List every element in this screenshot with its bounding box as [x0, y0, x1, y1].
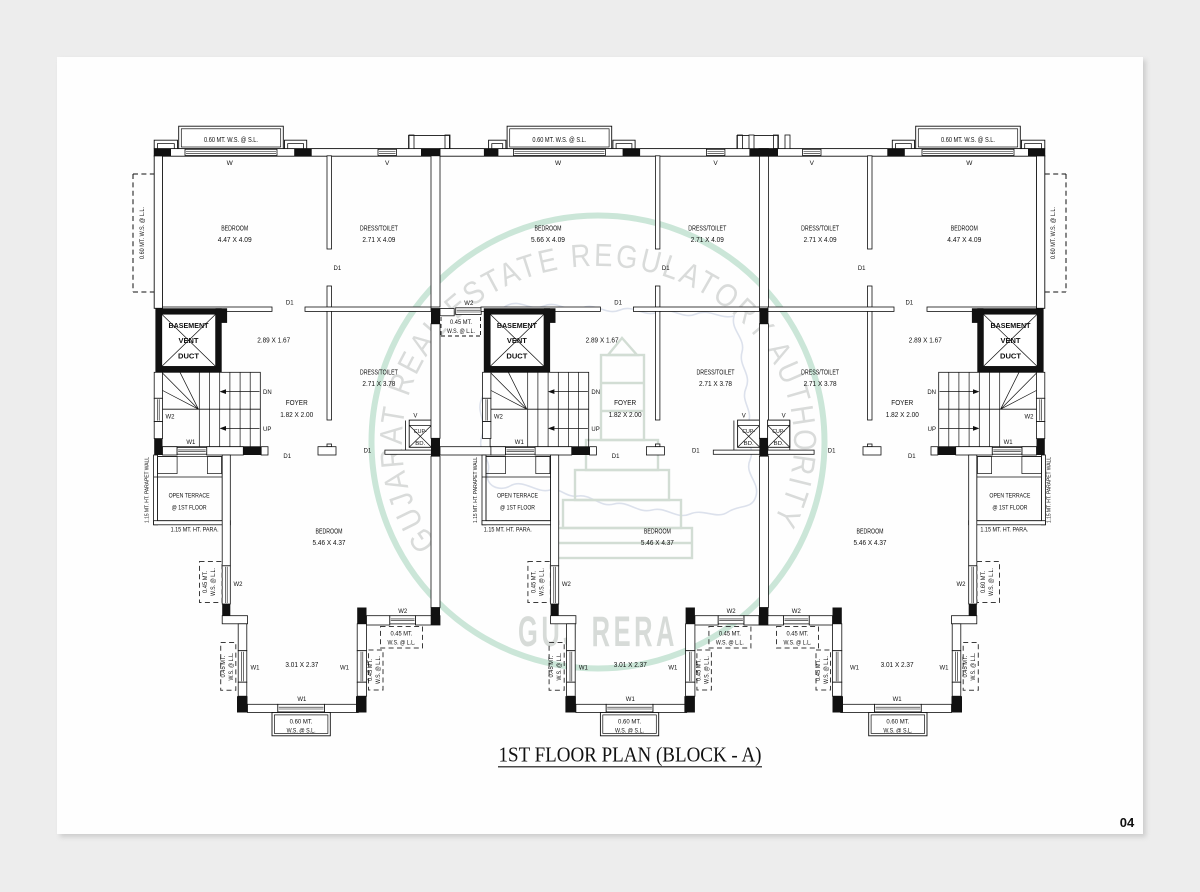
- svg-text:5.66 X 4.09: 5.66 X 4.09: [531, 237, 565, 244]
- svg-text:1.82 X 2.00: 1.82 X 2.00: [609, 412, 642, 419]
- svg-text:W.S. @ L.L.: W.S. @ L.L.: [557, 652, 563, 680]
- svg-text:OPEN TERRACE: OPEN TERRACE: [989, 493, 1031, 500]
- svg-text:W.S. @ L.L.: W.S. @ L.L.: [989, 568, 995, 596]
- svg-text:W.S. @ L.L.: W.S. @ L.L.: [705, 656, 711, 684]
- svg-text:DRESS/TOILET: DRESS/TOILET: [801, 226, 840, 233]
- svg-text:1.15 MT. HT. PARA.: 1.15 MT. HT. PARA.: [484, 527, 532, 534]
- svg-text:CUP-: CUP-: [742, 429, 755, 435]
- svg-text:1.15 MT. HT. PARAPET WALL: 1.15 MT. HT. PARAPET WALL: [145, 457, 151, 523]
- svg-text:D1: D1: [662, 266, 670, 272]
- svg-text:DRESS/TOILET: DRESS/TOILET: [360, 370, 399, 377]
- svg-text:FOYER: FOYER: [286, 400, 308, 407]
- svg-text:1.82 X 2.00: 1.82 X 2.00: [886, 412, 919, 419]
- svg-text:0.45 MT.: 0.45 MT.: [391, 632, 413, 638]
- svg-text:D1: D1: [614, 301, 622, 307]
- svg-text:W2: W2: [727, 609, 737, 615]
- svg-text:W1: W1: [1004, 440, 1014, 446]
- svg-text:D1: D1: [828, 449, 836, 455]
- svg-text:W.S. @ S.L.: W.S. @ S.L.: [287, 727, 316, 734]
- svg-text:BEDROOM: BEDROOM: [535, 226, 562, 233]
- svg-text:BEDROOM: BEDROOM: [644, 529, 671, 536]
- svg-text:FOYER: FOYER: [891, 400, 913, 407]
- svg-text:W.S. @ L.L.: W.S. @ L.L.: [540, 568, 546, 596]
- svg-text:W2: W2: [792, 609, 802, 615]
- svg-text:OPEN TERRACE: OPEN TERRACE: [497, 493, 539, 500]
- svg-text:DRESS/TOILET: DRESS/TOILET: [801, 370, 840, 377]
- svg-text:CUP-: CUP-: [414, 429, 427, 435]
- svg-text:D1: D1: [905, 301, 913, 307]
- svg-text:W1: W1: [297, 697, 307, 703]
- svg-text:W.S. @ L.L.: W.S. @ L.L.: [824, 656, 830, 684]
- svg-text:BEDROOM: BEDROOM: [951, 226, 978, 233]
- svg-text:V: V: [413, 414, 417, 420]
- svg-text:V: V: [742, 414, 746, 420]
- svg-text:1.82 X 2.00: 1.82 X 2.00: [280, 412, 313, 419]
- svg-text:D1: D1: [364, 449, 372, 455]
- svg-text:1.15 MT. HT. PARAPET WALL: 1.15 MT. HT. PARAPET WALL: [473, 457, 479, 523]
- svg-text:DN: DN: [927, 390, 936, 396]
- svg-text:0.45 MT.: 0.45 MT.: [963, 655, 969, 677]
- svg-text:0.60 MT.: 0.60 MT.: [981, 571, 987, 593]
- svg-text:3.01 X 2.37: 3.01 X 2.37: [881, 662, 914, 669]
- svg-text:0.45 MT.: 0.45 MT.: [787, 632, 809, 638]
- svg-text:W.S. @ L.L.: W.S. @ L.L.: [229, 652, 235, 680]
- svg-text:2.89 X 1.67: 2.89 X 1.67: [586, 338, 619, 345]
- svg-text:4.47 X 4.09: 4.47 X 4.09: [218, 237, 252, 244]
- svg-text:VENT: VENT: [179, 336, 199, 345]
- svg-text:0.60 MT.: 0.60 MT.: [618, 719, 641, 726]
- svg-text:VENT: VENT: [507, 336, 527, 345]
- svg-text:D1: D1: [334, 266, 342, 272]
- svg-text:0.60 MT. W.S. @ S.L.: 0.60 MT. W.S. @ S.L.: [941, 137, 995, 144]
- svg-text:0.45 MT.: 0.45 MT.: [697, 659, 703, 681]
- svg-text:BASEMENT: BASEMENT: [169, 321, 209, 330]
- svg-text:W2: W2: [464, 301, 474, 307]
- svg-text:BD.: BD.: [744, 441, 755, 447]
- svg-text:W.S. @ S.L.: W.S. @ S.L.: [883, 727, 912, 734]
- svg-text:2.89 X 1.67: 2.89 X 1.67: [257, 338, 290, 345]
- svg-text:UP: UP: [928, 427, 936, 433]
- svg-text:W1: W1: [893, 697, 903, 703]
- svg-text:0.60 MT. W.S. @ L.L.: 0.60 MT. W.S. @ L.L.: [140, 207, 146, 259]
- svg-text:V: V: [782, 414, 786, 420]
- svg-text:0.60 MT.: 0.60 MT.: [290, 719, 313, 726]
- svg-text:2.71 X 4.09: 2.71 X 4.09: [691, 237, 724, 244]
- svg-text:2.71 X 4.09: 2.71 X 4.09: [362, 237, 395, 244]
- svg-text:2.89 X 1.67: 2.89 X 1.67: [909, 338, 942, 345]
- svg-text:DUCT: DUCT: [1000, 352, 1021, 361]
- svg-text:W.S. @ L.L.: W.S. @ L.L.: [388, 641, 416, 647]
- svg-text:0.45 MT.: 0.45 MT.: [532, 571, 538, 593]
- svg-text:DRESS/TOILET: DRESS/TOILET: [697, 370, 736, 377]
- svg-text:BASEMENT: BASEMENT: [991, 321, 1031, 330]
- svg-text:W.S. @ L.L.: W.S. @ L.L.: [716, 641, 744, 647]
- svg-text:5.46 X 4.37: 5.46 X 4.37: [313, 540, 346, 547]
- svg-text:CUP-: CUP-: [772, 429, 785, 435]
- svg-text:D1: D1: [283, 454, 291, 460]
- svg-text:0.45 MT.: 0.45 MT.: [368, 659, 374, 681]
- svg-text:@ 1ST FLOOR: @ 1ST FLOOR: [500, 505, 535, 512]
- svg-text:D1: D1: [692, 449, 700, 455]
- svg-text:BEDROOM: BEDROOM: [221, 226, 248, 233]
- svg-text:W2: W2: [957, 582, 967, 588]
- svg-text:DUCT: DUCT: [506, 352, 527, 361]
- svg-text:D1: D1: [908, 454, 916, 460]
- svg-text:0.60 MT. W.S. @ S.L.: 0.60 MT. W.S. @ S.L.: [532, 137, 586, 144]
- svg-text:W1: W1: [940, 666, 950, 672]
- svg-text:0.45 MT.: 0.45 MT.: [719, 632, 741, 638]
- svg-text:UP: UP: [591, 427, 599, 433]
- svg-text:0.45 MT.: 0.45 MT.: [549, 655, 555, 677]
- svg-text:W1: W1: [626, 697, 636, 703]
- svg-text:W2: W2: [494, 415, 504, 421]
- svg-text:W.S. @ L.L.: W.S. @ L.L.: [211, 568, 217, 596]
- svg-text:FOYER: FOYER: [614, 400, 636, 407]
- svg-text:2.71 X 3.78: 2.71 X 3.78: [699, 381, 732, 388]
- svg-text:W1: W1: [668, 666, 678, 672]
- svg-text:BD.: BD.: [774, 441, 785, 447]
- svg-text:V: V: [385, 160, 390, 167]
- svg-text:2.71 X 3.78: 2.71 X 3.78: [362, 381, 395, 388]
- svg-text:3.01 X 2.37: 3.01 X 2.37: [285, 662, 318, 669]
- svg-text:3.01 X 2.37: 3.01 X 2.37: [614, 662, 647, 669]
- svg-text:W.S. @ S.L.: W.S. @ S.L.: [615, 727, 644, 734]
- svg-text:DRESS/TOILET: DRESS/TOILET: [688, 226, 727, 233]
- svg-text:0.60 MT.: 0.60 MT.: [886, 719, 909, 726]
- svg-text:W1: W1: [251, 666, 261, 672]
- svg-text:W: W: [966, 160, 973, 167]
- svg-text:W.S. @ L.L.: W.S. @ L.L.: [376, 656, 382, 684]
- svg-text:V: V: [810, 160, 815, 167]
- svg-text:W.S. @ L.L.: W.S. @ L.L.: [447, 329, 475, 335]
- svg-text:2.71 X 3.78: 2.71 X 3.78: [804, 381, 837, 388]
- svg-text:W1: W1: [186, 440, 196, 446]
- svg-text:DN: DN: [263, 390, 272, 396]
- svg-text:BEDROOM: BEDROOM: [857, 529, 884, 536]
- svg-text:4.47 X 4.09: 4.47 X 4.09: [947, 237, 981, 244]
- svg-text:W2: W2: [1025, 415, 1035, 421]
- svg-text:0.45 MT.: 0.45 MT.: [816, 659, 822, 681]
- svg-text:@ 1ST FLOOR: @ 1ST FLOOR: [992, 505, 1027, 512]
- svg-text:D1: D1: [612, 454, 620, 460]
- svg-text:GUJ RERA: GUJ RERA: [518, 608, 678, 656]
- svg-text:2.71 X 4.09: 2.71 X 4.09: [804, 237, 837, 244]
- svg-text:0.45 MT.: 0.45 MT.: [221, 655, 227, 677]
- svg-text:BEDROOM: BEDROOM: [316, 529, 343, 536]
- svg-text:W1: W1: [579, 666, 589, 672]
- svg-text:W2: W2: [234, 582, 244, 588]
- svg-text:DUCT: DUCT: [178, 352, 199, 361]
- svg-text:1.15 MT. HT. PARA.: 1.15 MT. HT. PARA.: [980, 527, 1028, 534]
- svg-text:5.46 X 4.37: 5.46 X 4.37: [854, 540, 887, 547]
- svg-text:VENT: VENT: [1001, 336, 1021, 345]
- svg-text:0.45 MT.: 0.45 MT.: [450, 320, 472, 326]
- svg-text:0.45 MT.: 0.45 MT.: [203, 571, 209, 593]
- svg-text:W.S. @ L.L.: W.S. @ L.L.: [784, 641, 812, 647]
- svg-text:1ST FLOOR PLAN (BLOCK - A): 1ST FLOOR PLAN (BLOCK - A): [499, 743, 762, 767]
- svg-text:1.15 MT. HT. PARA.: 1.15 MT. HT. PARA.: [171, 527, 219, 534]
- svg-text:W: W: [555, 160, 562, 167]
- svg-text:W1: W1: [515, 440, 525, 446]
- svg-text:DN: DN: [591, 390, 600, 396]
- svg-text:W2: W2: [398, 609, 408, 615]
- svg-text:W: W: [227, 160, 234, 167]
- svg-text:W.S. @ L.L.: W.S. @ L.L.: [971, 652, 977, 680]
- svg-text:OPEN TERRACE: OPEN TERRACE: [169, 493, 211, 500]
- svg-text:V: V: [713, 160, 718, 167]
- svg-text:0.60 MT. W.S. @ L.L.: 0.60 MT. W.S. @ L.L.: [1051, 207, 1057, 259]
- svg-text:UP: UP: [263, 427, 271, 433]
- svg-text:W2: W2: [166, 415, 176, 421]
- svg-text:DRESS/TOILET: DRESS/TOILET: [360, 226, 399, 233]
- svg-text:BD.: BD.: [415, 441, 426, 447]
- svg-text:BASEMENT: BASEMENT: [497, 321, 537, 330]
- svg-text:W1: W1: [850, 666, 860, 672]
- svg-text:04: 04: [1120, 815, 1135, 830]
- svg-text:0.60 MT. W.S. @ S.L.: 0.60 MT. W.S. @ S.L.: [204, 137, 258, 144]
- svg-text:D1: D1: [858, 266, 866, 272]
- svg-text:W1: W1: [340, 666, 350, 672]
- svg-text:W2: W2: [562, 582, 572, 588]
- svg-text:D1: D1: [286, 301, 294, 307]
- svg-text:1.15 MT. HT. PARAPET WALL: 1.15 MT. HT. PARAPET WALL: [1047, 457, 1053, 523]
- svg-text:5.46 X 4.37: 5.46 X 4.37: [641, 540, 674, 547]
- svg-text:@ 1ST FLOOR: @ 1ST FLOOR: [172, 505, 207, 512]
